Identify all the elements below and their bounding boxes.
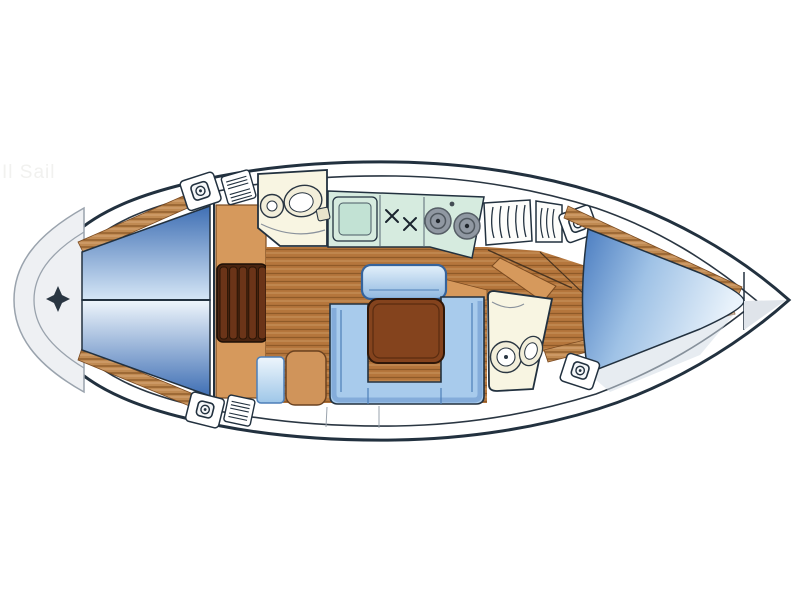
port-head bbox=[258, 170, 330, 246]
galley-sink-basin bbox=[339, 203, 371, 235]
faucet-dot bbox=[450, 202, 455, 207]
yacht-floorplan-diagram: Il Sail bbox=[0, 0, 800, 600]
swim-platform bbox=[14, 208, 84, 392]
watermark-text: Il Sail bbox=[2, 162, 55, 183]
step-treads bbox=[220, 267, 266, 339]
basin-drain bbox=[267, 201, 277, 211]
saloon-table bbox=[368, 299, 444, 363]
chart-panel bbox=[257, 357, 284, 403]
side-bench bbox=[362, 265, 446, 299]
screenshot-canvas: Il Sail bbox=[0, 0, 800, 600]
nav-seat bbox=[286, 351, 326, 405]
vent-grille-icon bbox=[223, 395, 255, 427]
nav-station bbox=[257, 351, 326, 405]
